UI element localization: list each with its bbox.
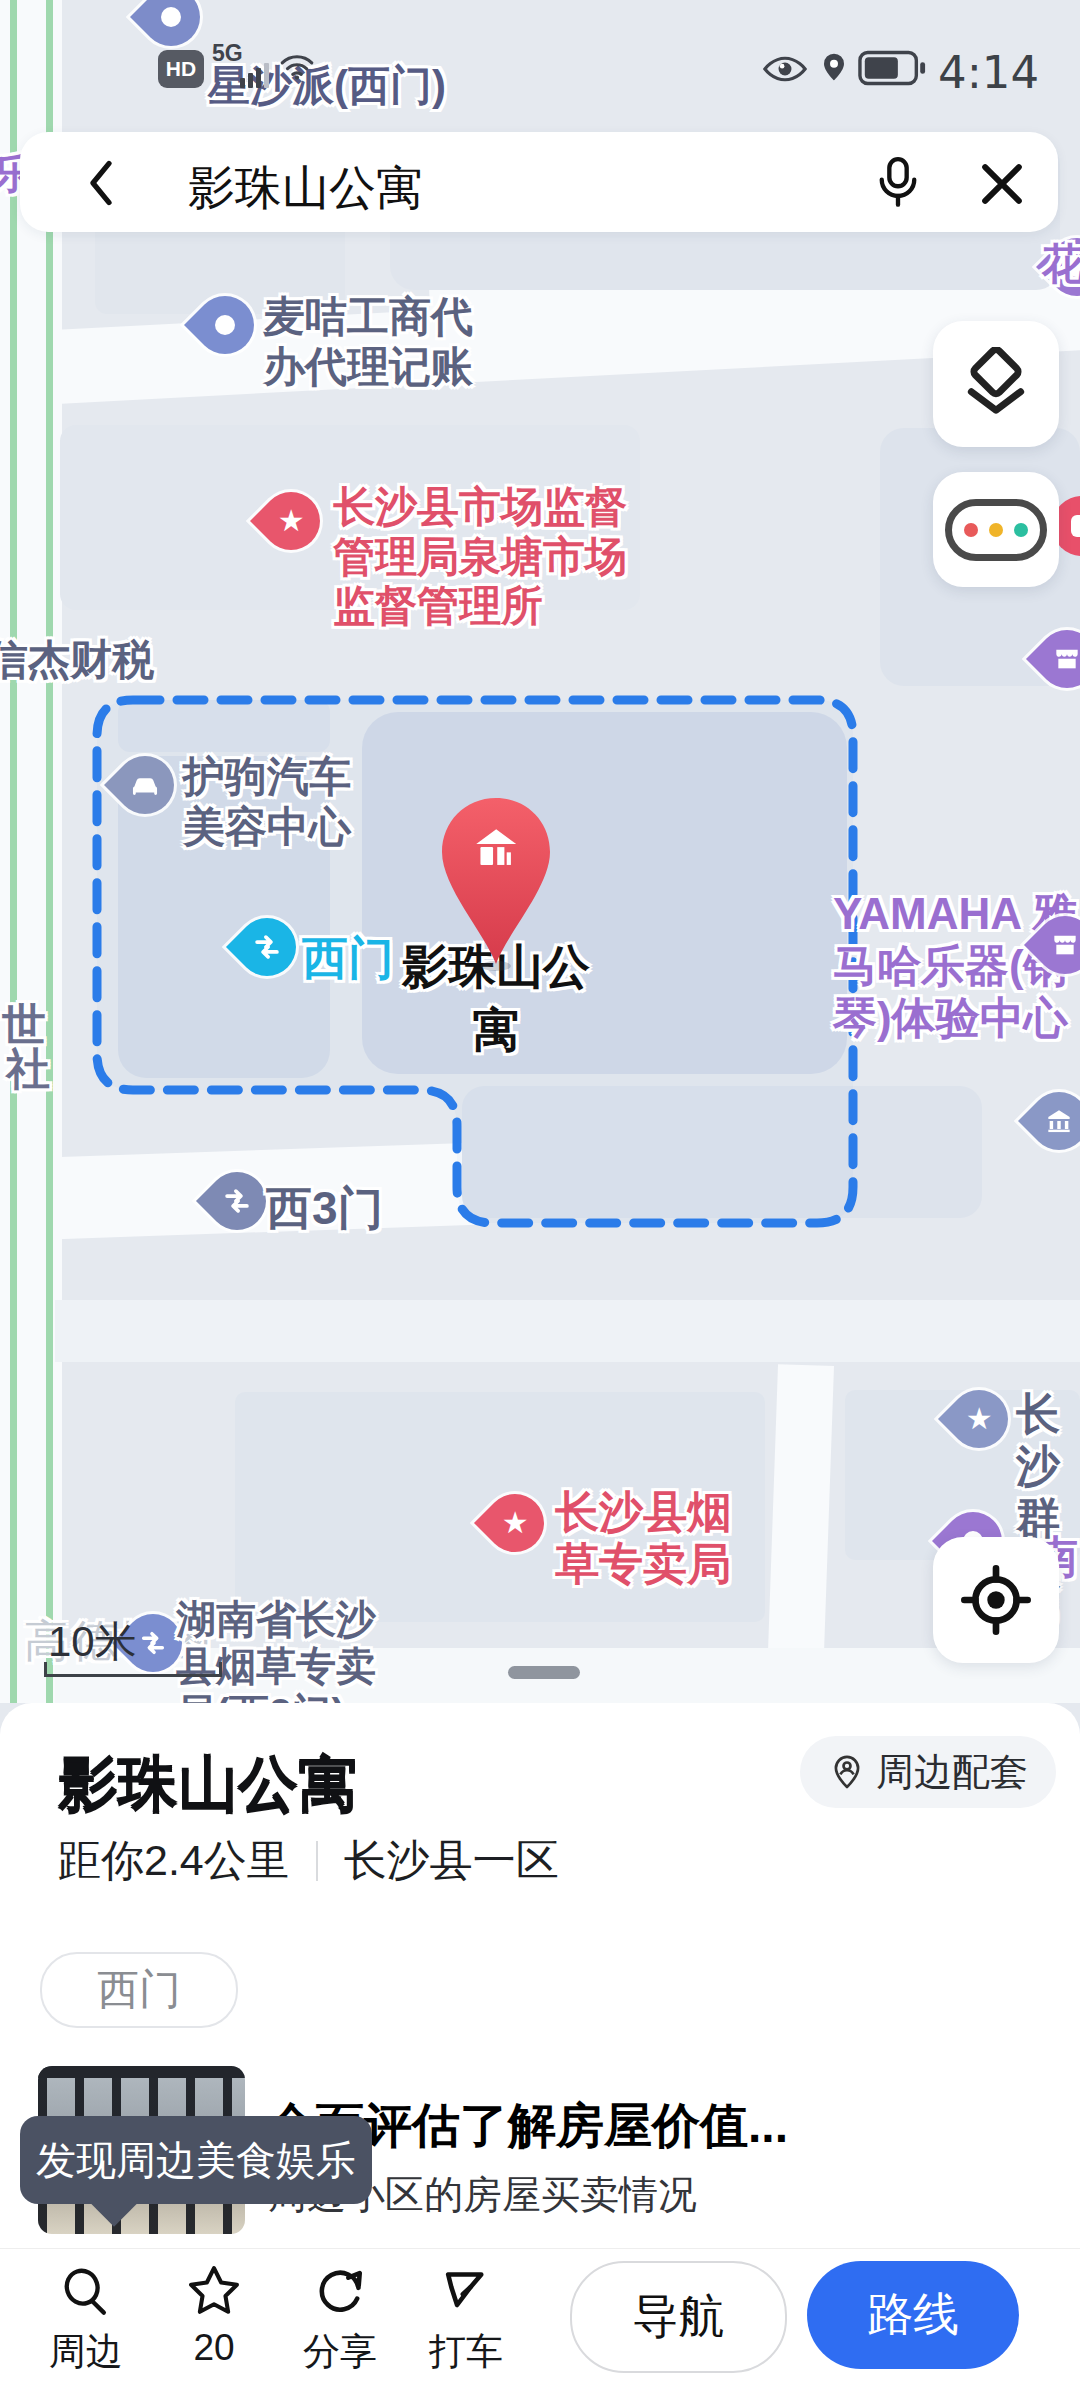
hd-badge: HD [158, 50, 204, 88]
search-bar: 影珠山公寓 [20, 132, 1058, 232]
navigate-button[interactable]: 导航 [570, 2261, 787, 2373]
poi-pin-bank-edge[interactable] [1030, 1092, 1080, 1166]
poi-label-market-bureau[interactable]: 长沙县市场监督 管理局泉塘市场 监督管理所 [333, 482, 627, 631]
poi-label-xinjie: 信杰财税 [0, 632, 154, 688]
clear-search-button[interactable] [970, 154, 1034, 214]
search-input[interactable]: 影珠山公寓 [188, 157, 423, 220]
action-toolbar: 周边 20 分享 打车 导航 路线 [0, 2248, 1080, 2400]
poi-pin-west-gate3[interactable] [208, 1172, 266, 1246]
share-icon [312, 2263, 368, 2319]
poi-pin-shop-edge[interactable] [1038, 630, 1080, 704]
battery-icon [858, 48, 928, 88]
layers-icon [959, 347, 1033, 421]
distance-text: 距你2.4公里 [58, 1832, 290, 1890]
gate-tag-button[interactable]: 西门 [40, 1952, 238, 2028]
discover-bubble-label: 发现周边美食娱乐 [36, 2133, 356, 2188]
wifi-icon [278, 52, 316, 82]
nearby-label: 周边 [49, 2327, 123, 2377]
bank-icon [1043, 1105, 1075, 1137]
back-button[interactable] [86, 160, 130, 206]
signal-icon [240, 62, 270, 88]
traffic-dots-icon [945, 499, 1047, 561]
shop-icon [1049, 929, 1080, 961]
locate-button[interactable] [933, 1537, 1059, 1663]
poi-pin-maiji[interactable] [196, 296, 254, 370]
car-icon [128, 768, 162, 802]
person-pin-icon [828, 1753, 866, 1791]
share-button[interactable]: 分享 [280, 2263, 400, 2377]
poi-meta-row: 距你2.4公里 长沙县一区 [58, 1832, 559, 1890]
map-app-screen: 星沙派(西门) 乐 花 麦咭工商代 办代理记账 ★ 长沙县市场监督 管理局泉塘市… [0, 0, 1080, 2400]
sheet-drag-handle[interactable] [508, 1666, 580, 1679]
microphone-icon [872, 150, 924, 216]
star-icon [186, 2263, 242, 2319]
gate-icon [250, 930, 284, 964]
surroundings-button[interactable]: 周边配套 [800, 1736, 1056, 1808]
gate-icon [220, 1184, 254, 1218]
discover-bubble[interactable]: 发现周边美食娱乐 [20, 2116, 372, 2204]
meta-divider [316, 1841, 318, 1881]
map-scale-bar [44, 1662, 222, 1677]
poi-pin-west-gate[interactable] [238, 918, 296, 992]
location-status-icon [818, 46, 850, 88]
mic-button[interactable] [866, 148, 930, 218]
poi-pin-huju[interactable] [116, 756, 174, 830]
layers-button[interactable] [933, 321, 1059, 447]
network-label: 5G [212, 40, 243, 67]
poi-label-tobacco-west2[interactable]: 湖南省长沙 县烟草专卖 局(西2门) [176, 1596, 376, 1703]
area-text: 长沙县一区 [344, 1832, 559, 1890]
share-label: 分享 [303, 2327, 377, 2377]
taxi-label: 打车 [429, 2327, 503, 2377]
search-icon [58, 2263, 114, 2319]
shop-icon [1051, 643, 1080, 675]
favorites-count: 20 [193, 2327, 234, 2369]
main-poi-pin[interactable] [438, 796, 554, 974]
poi-label-hua: 花 [1042, 236, 1080, 292]
gate-tag-label: 西门 [97, 1962, 181, 2018]
clock: 4:14 [938, 46, 1039, 99]
traffic-toggle-button[interactable] [933, 472, 1059, 587]
route-button[interactable]: 路线 [807, 2261, 1019, 2369]
poi-pin-tobacco[interactable]: ★ [486, 1494, 544, 1568]
nearby-button[interactable]: 周边 [26, 2263, 146, 2377]
favorites-button[interactable]: 20 [154, 2263, 274, 2369]
poi-label-tobacco[interactable]: 长沙县烟 草专卖局 [555, 1486, 731, 1590]
status-bar: HD 5G 4:14 [0, 0, 1080, 100]
navigate-label: 导航 [633, 2286, 725, 2348]
locate-crosshair-icon [958, 1562, 1034, 1638]
poi-label-she: 社 [6, 1040, 50, 1099]
poi-label-west-gate3[interactable]: 西3门 [266, 1178, 384, 1240]
taxi-button[interactable]: 打车 [406, 2263, 526, 2377]
surroundings-label: 周边配套 [876, 1747, 1028, 1798]
poi-label-maiji[interactable]: 麦咭工商代 办代理记账 [263, 292, 473, 391]
poi-pin-qunfu[interactable]: ★ [950, 1390, 1008, 1464]
poi-title: 影珠山公寓 [58, 1744, 358, 1825]
back-chevron-icon [86, 160, 116, 206]
poi-pin-yamaha[interactable] [1036, 916, 1080, 990]
map-canvas[interactable]: 星沙派(西门) 乐 花 麦咭工商代 办代理记账 ★ 长沙县市场监督 管理局泉塘市… [0, 0, 1080, 1703]
taxi-flag-icon [438, 2263, 494, 2319]
close-icon [976, 158, 1028, 210]
route-label: 路线 [867, 2284, 959, 2346]
poi-label-huju[interactable]: 护驹汽车 美容中心 [183, 752, 351, 851]
poi-pin-market-bureau[interactable]: ★ [262, 492, 320, 566]
eye-icon [762, 54, 808, 84]
gate-icon [137, 1627, 169, 1659]
